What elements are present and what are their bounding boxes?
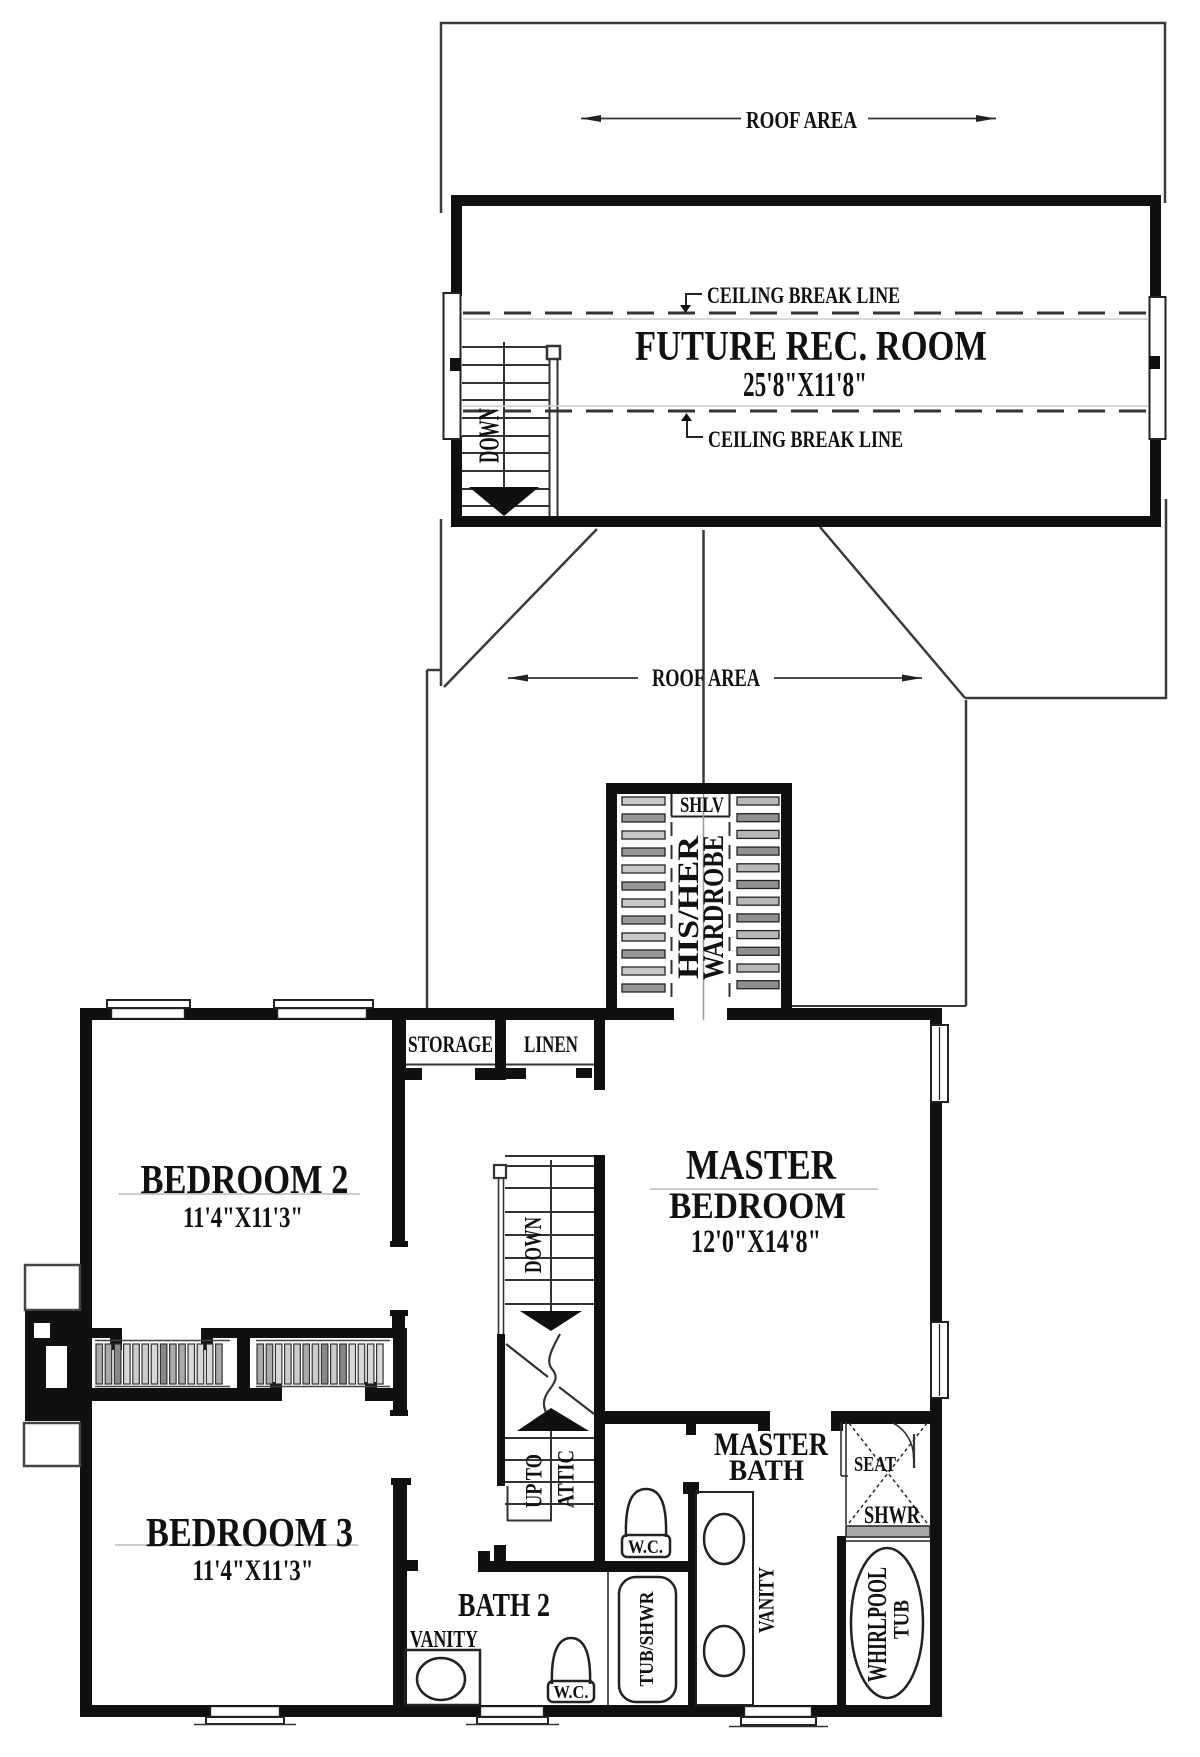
svg-text:MASTER: MASTER [686,1143,837,1189]
svg-text:ATTIC: ATTIC [554,1450,579,1508]
svg-text:W.C.: W.C. [554,1682,589,1702]
svg-text:CEILING BREAK LINE: CEILING BREAK LINE [707,283,900,308]
svg-text:SHLV: SHLV [680,792,724,817]
svg-text:VANITY: VANITY [410,1627,478,1653]
svg-text:BEDROOM 3: BEDROOM 3 [146,1509,353,1555]
svg-text:BEDROOM 2: BEDROOM 2 [141,1156,349,1202]
svg-text:ROOF AREA: ROOF AREA [746,108,858,134]
svg-text:UP TO: UP TO [522,1454,547,1508]
svg-text:LINEN: LINEN [524,1032,578,1057]
svg-text:TUB: TUB [889,1600,914,1639]
svg-text:11'4"X11'3": 11'4"X11'3" [193,1554,314,1587]
svg-text:DOWN: DOWN [475,408,506,463]
svg-text:STORAGE: STORAGE [408,1032,493,1057]
svg-text:DOWN: DOWN [521,1217,547,1273]
svg-text:SEAT: SEAT [854,1452,896,1476]
svg-text:12'0"X14'8": 12'0"X14'8" [691,1224,821,1260]
svg-text:BEDROOM: BEDROOM [669,1186,846,1227]
svg-text:ROOF AREA: ROOF AREA [652,665,760,692]
svg-text:VANITY: VANITY [754,1567,779,1633]
svg-text:11'4"X11'3": 11'4"X11'3" [183,1201,303,1234]
svg-text:SHWR: SHWR [864,1502,921,1529]
svg-text:TUB/SHWR: TUB/SHWR [636,1591,658,1686]
svg-text:BATH: BATH [729,1454,804,1487]
svg-text:CEILING BREAK LINE: CEILING BREAK LINE [708,427,903,452]
svg-text:FUTURE REC. ROOM: FUTURE REC. ROOM [635,324,987,370]
svg-text:WHIRLPOOL: WHIRLPOOL [862,1567,892,1682]
svg-text:BATH 2: BATH 2 [458,1587,550,1624]
svg-text:25'8"X11'8": 25'8"X11'8" [743,365,867,404]
svg-text:WARDROBE: WARDROBE [697,835,730,980]
svg-text:W.C.: W.C. [628,1537,663,1558]
